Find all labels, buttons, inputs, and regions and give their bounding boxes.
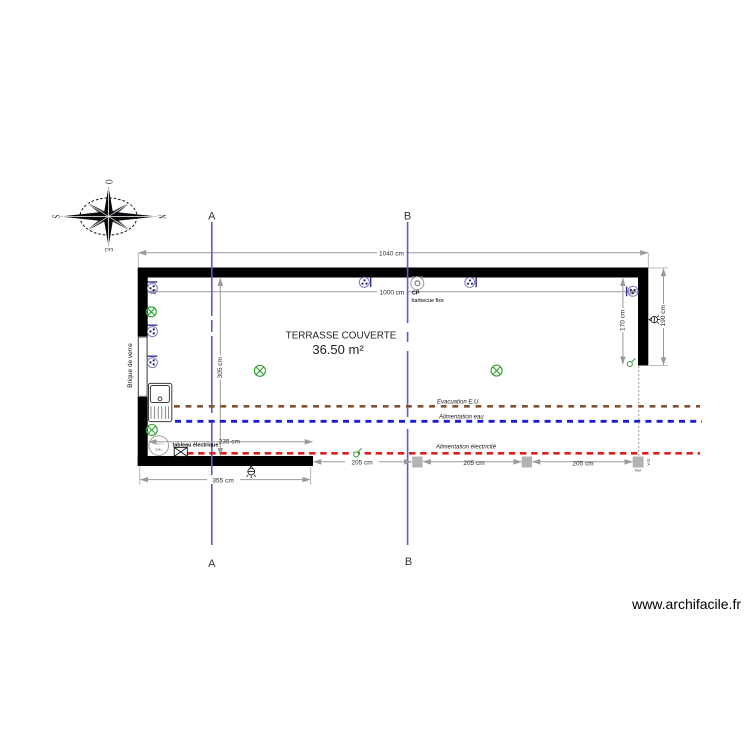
svg-text:305 cm: 305 cm <box>217 357 224 378</box>
svg-text:32 A: 32 A <box>647 458 651 466</box>
svg-text:N: N <box>156 214 167 219</box>
svg-text:Alimentation eau: Alimentation eau <box>438 415 484 421</box>
svg-text:205 cm: 205 cm <box>463 460 484 467</box>
svg-text:A: A <box>208 558 216 570</box>
svg-text:TERRASSE COUVERTE: TERRASSE COUVERTE <box>286 330 397 341</box>
svg-text:Evacuation E.U.: Evacuation E.U. <box>437 400 480 406</box>
svg-text:barbecue fixe: barbecue fixe <box>412 298 444 304</box>
svg-text:eau: eau <box>155 448 161 452</box>
svg-text:CP: CP <box>412 291 420 297</box>
svg-text:36.50 m²: 36.50 m² <box>312 342 364 357</box>
svg-text:Brique de verre: Brique de verre <box>127 343 134 388</box>
svg-text:355 cm: 355 cm <box>212 477 233 484</box>
svg-text:170 cm: 170 cm <box>619 310 626 331</box>
svg-text:B: B <box>404 211 411 223</box>
svg-text:E: E <box>103 248 114 252</box>
svg-text:205 cm: 205 cm <box>572 460 593 467</box>
svg-text:O: O <box>103 180 114 185</box>
svg-text:1040 cm: 1040 cm <box>379 250 404 257</box>
svg-text:B: B <box>405 556 412 568</box>
svg-text:190 cm: 190 cm <box>660 305 667 326</box>
svg-text:235 cm: 235 cm <box>219 439 240 446</box>
svg-text:1000 cm: 1000 cm <box>380 290 405 297</box>
svg-text:S: S <box>50 215 61 219</box>
svg-text:four: four <box>635 469 642 473</box>
svg-text:A: A <box>208 211 216 223</box>
svg-text:205 cm: 205 cm <box>351 459 372 466</box>
svg-text:www.archifacile.fr: www.archifacile.fr <box>631 596 741 612</box>
svg-text:Alimentation électricité: Alimentation électricité <box>435 445 497 451</box>
